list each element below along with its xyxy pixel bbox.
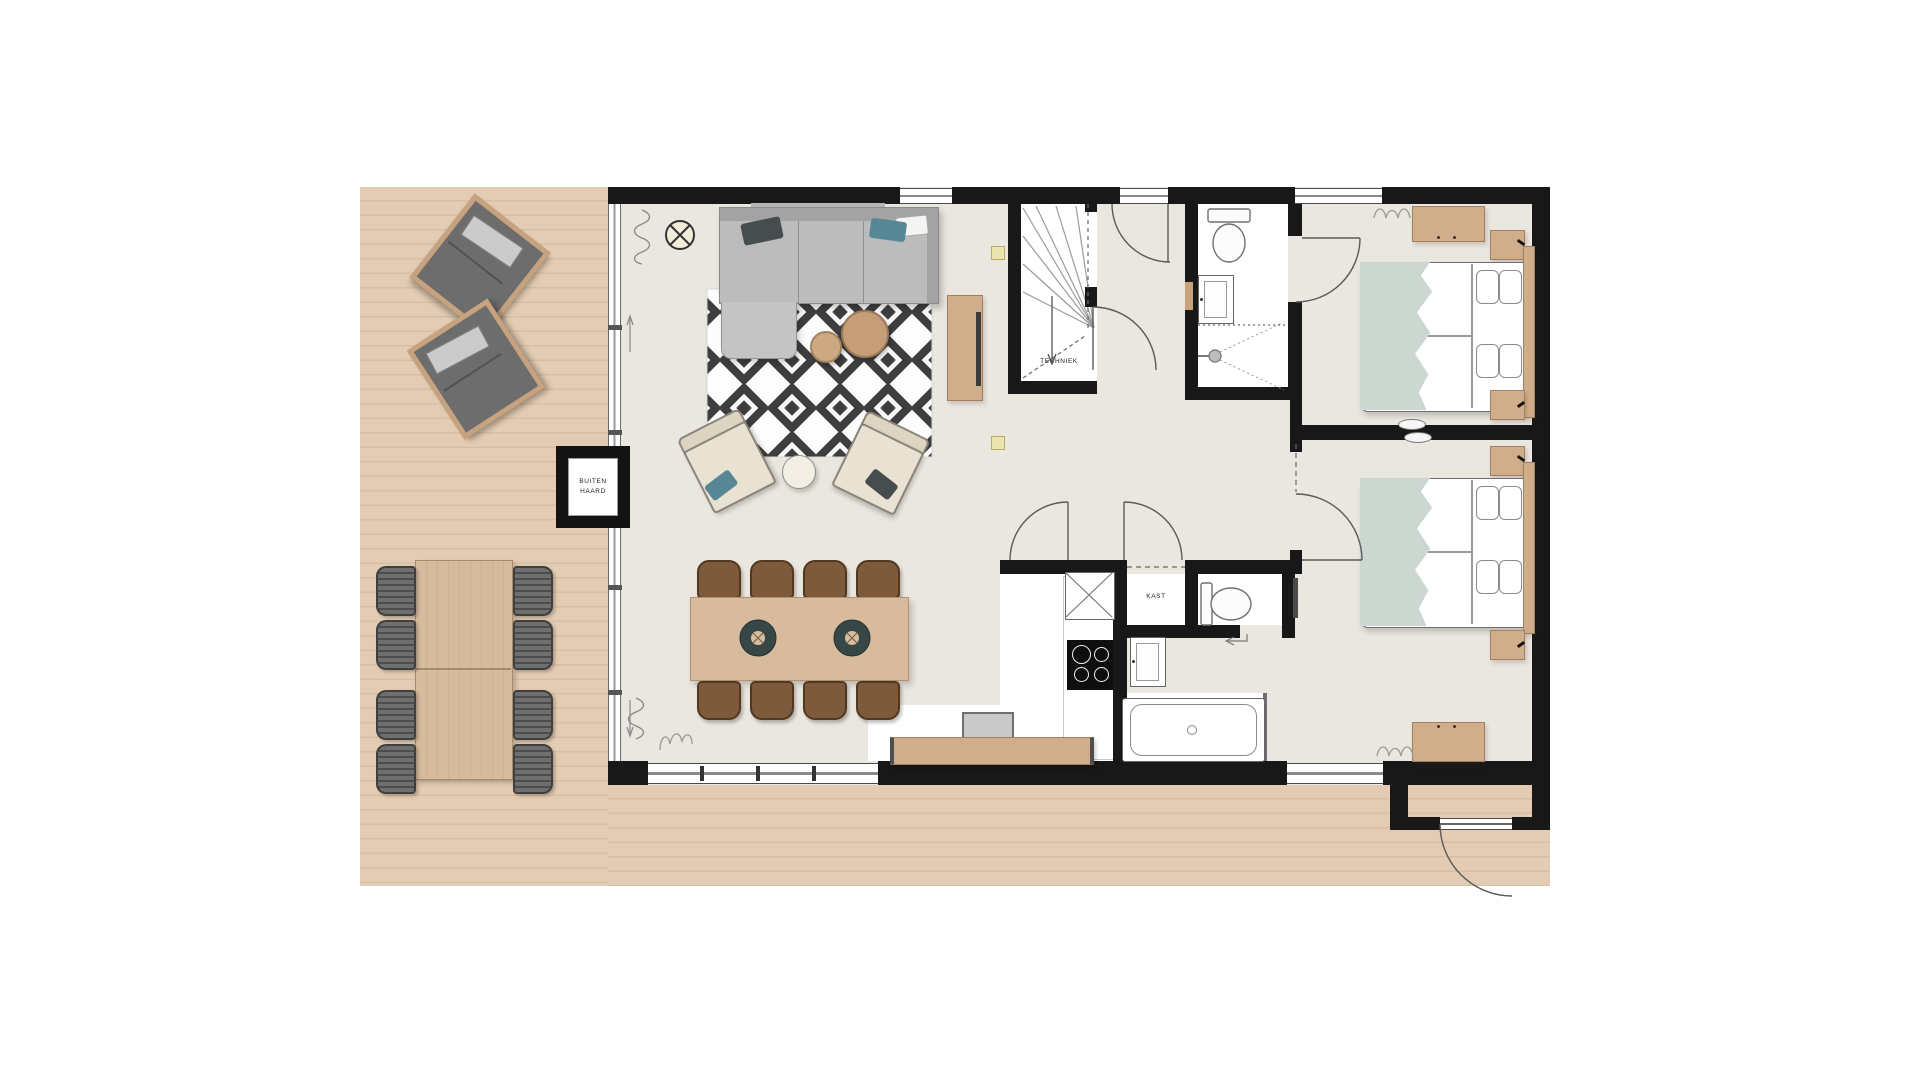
curtain-squiggles (629, 209, 1414, 756)
ceiling-light-icon (666, 221, 694, 249)
toilet-door-arrow (1226, 634, 1247, 645)
appliance-x (1066, 573, 1112, 617)
dashed-lines (1023, 204, 1296, 567)
toilet (1208, 209, 1250, 262)
door-swings (1010, 204, 1512, 896)
floor-plan-canvas: BUITEN HAARD (0, 0, 1920, 1080)
shower-head (1198, 322, 1284, 390)
charger-plates (740, 620, 870, 656)
toilet (1201, 583, 1251, 625)
plan-annotations (0, 0, 1920, 1080)
slide-arrows (627, 316, 633, 736)
stairs-arrow (1048, 296, 1056, 364)
